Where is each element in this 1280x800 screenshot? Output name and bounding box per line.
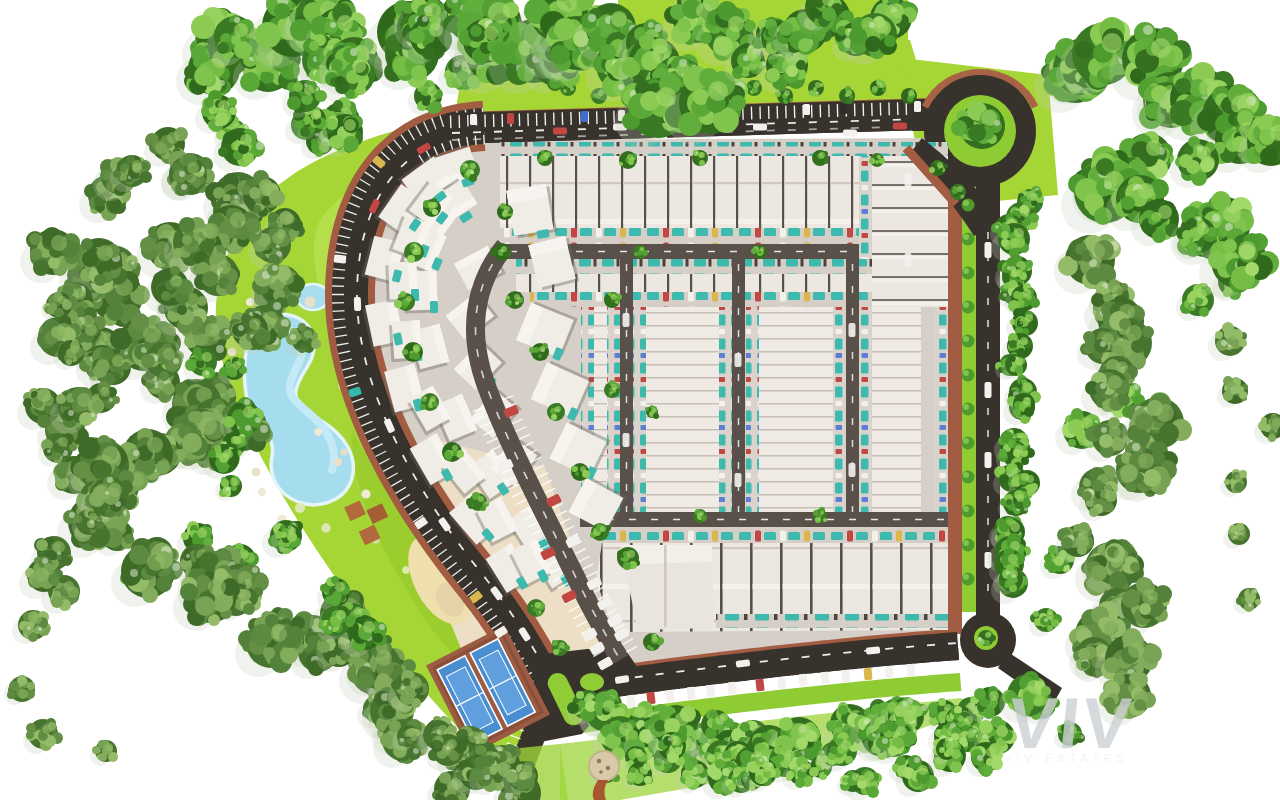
svg-text:VIV ESTATES: VIV ESTATES [1004, 752, 1128, 764]
svg-text:VIV: VIV [1004, 683, 1137, 763]
